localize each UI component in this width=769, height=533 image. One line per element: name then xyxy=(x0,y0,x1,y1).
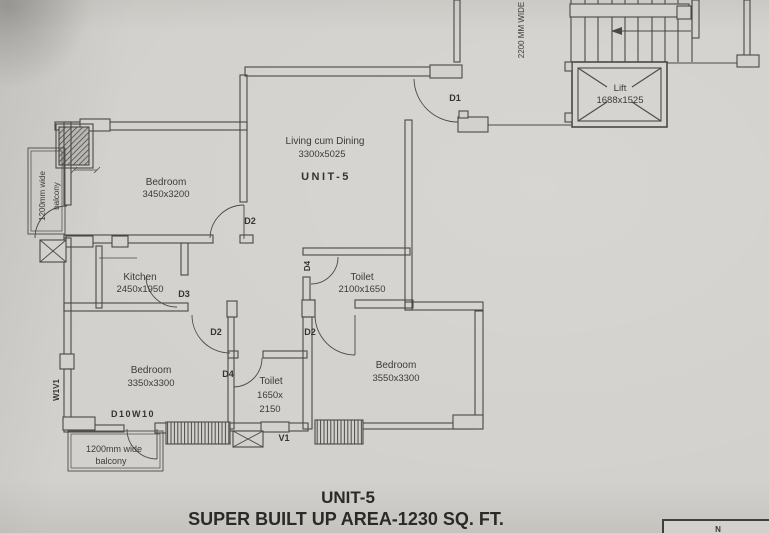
footer-area-title: SUPER BUILT UP AREA-1230 SQ. FT. xyxy=(188,509,504,529)
north-label: N xyxy=(715,525,721,533)
stair-direction-arrow xyxy=(611,27,622,35)
staircase xyxy=(570,0,699,62)
window-hatched-1 xyxy=(166,422,230,444)
ventilator-v1 xyxy=(261,422,289,432)
footer-unit-title: UNIT-5 xyxy=(321,488,375,507)
window-block-2 xyxy=(453,415,483,429)
door-marker-d4-2: D4 xyxy=(222,369,234,379)
room-size-living: 3300x5025 xyxy=(298,149,345,160)
room-size-toilet1: 2100x1650 xyxy=(338,284,385,295)
door-arc-d4-toilet2 xyxy=(234,358,262,387)
living-top-wall xyxy=(245,67,435,76)
lobby-left-wall xyxy=(454,0,460,62)
room-size-toilet2-l2: 2150 xyxy=(259,404,280,415)
floor-plan-drawing: Living cum Dining 3300x5025 UNIT-5 Bedro… xyxy=(0,0,769,533)
door-marker-d4-1: D4 xyxy=(303,260,312,271)
door-marker-d1: D1 xyxy=(449,93,461,103)
door-marker-d10w10: D10W10 xyxy=(111,409,155,419)
ventilator-marker-v1: V1 xyxy=(278,433,289,443)
window-w1v1 xyxy=(60,354,74,369)
room-size-kitchen: 2450x1950 xyxy=(116,284,163,295)
room-label-bedroom1: Bedroom xyxy=(146,177,187,188)
door-marker-d2-1: D2 xyxy=(244,216,256,226)
room-size-bedroom2: 3350x3300 xyxy=(127,378,174,389)
window-marker-w1v1: W1V1 xyxy=(52,379,61,401)
door-marker-d3: D3 xyxy=(178,289,190,299)
room-size-bedroom1: 3450x3200 xyxy=(142,189,189,200)
window-hatched-2 xyxy=(315,420,363,444)
bottom-balcony-label-l1: 1200mm wide xyxy=(86,444,142,454)
room-label-lift: Lift xyxy=(614,83,627,94)
hall-doors xyxy=(192,300,483,355)
unit-east-wall xyxy=(405,120,412,310)
room-size-toilet2-l1: 1650x xyxy=(257,390,283,401)
room-size-bedroom3: 3550x3300 xyxy=(372,373,419,384)
living-left-wall xyxy=(240,75,247,202)
door-arc-d2-bedroom3 xyxy=(315,315,355,355)
bottom-balcony-label-l2: balcony xyxy=(95,456,127,466)
wall-end-block xyxy=(737,55,759,67)
door-marker-d2-3: D2 xyxy=(304,327,316,337)
floor-plan-photo: Living cum Dining 3300x5025 UNIT-5 Bedro… xyxy=(0,0,769,533)
room-label-toilet2: Toilet xyxy=(259,376,283,387)
door-arc-d4-toilet1 xyxy=(311,257,338,284)
bedroom3-top-wall xyxy=(405,302,483,310)
room-label-toilet1: Toilet xyxy=(350,272,374,283)
left-balcony-label-l1: 1200mm wide xyxy=(38,171,47,221)
outer-right-wall xyxy=(744,0,750,56)
room-label-bedroom2: Bedroom xyxy=(131,365,172,376)
room-label-kitchen: Kitchen xyxy=(123,272,156,283)
door-arc-d2-bedroom1 xyxy=(210,205,244,238)
left-balcony-label-l2: balcony xyxy=(52,182,61,210)
unit-tag: UNIT-5 xyxy=(301,171,351,183)
room-label-bedroom3: Bedroom xyxy=(376,360,417,371)
room-size-lift: 1688x1525 xyxy=(596,95,643,106)
door-marker-d2-2: D2 xyxy=(210,327,222,337)
kitchen-walls xyxy=(40,240,188,311)
room-label-living: Living cum Dining xyxy=(286,136,365,147)
stair-width-label: 2200 MM WIDE xyxy=(517,2,526,58)
